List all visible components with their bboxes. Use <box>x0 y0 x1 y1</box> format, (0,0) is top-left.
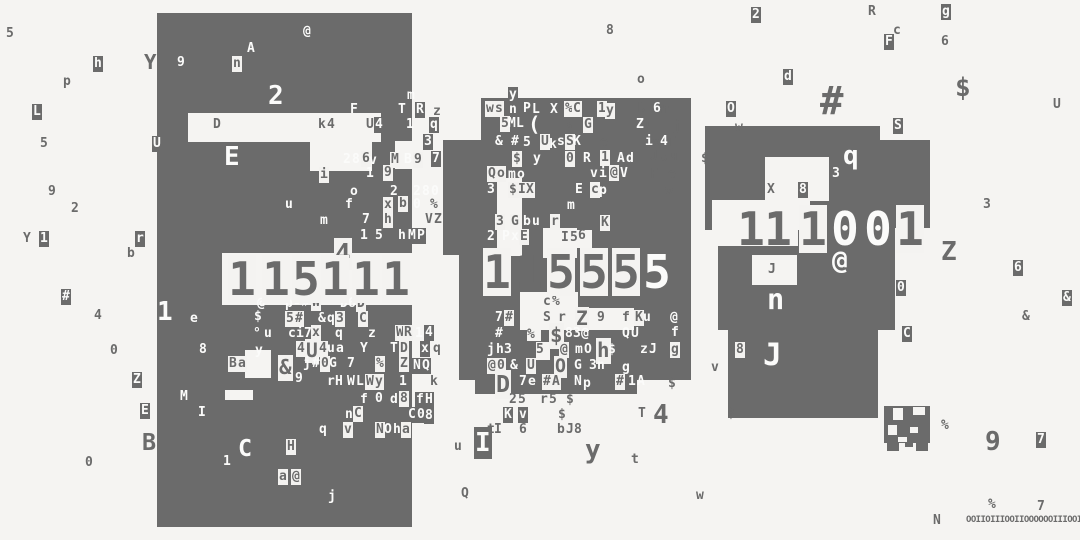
big-digit: 5 <box>643 248 671 296</box>
glyph: a <box>237 356 247 372</box>
glyph: u <box>285 197 293 213</box>
block-rect <box>887 443 899 451</box>
glyph: u <box>532 214 540 230</box>
glyph: L <box>516 116 524 132</box>
glyph: 1 <box>406 117 414 133</box>
big-digit: 1 <box>321 255 349 303</box>
glyph: $ <box>254 309 262 325</box>
glyph: j <box>303 356 311 372</box>
glyph: 3 <box>573 326 581 342</box>
glyph: h <box>496 342 504 358</box>
glyph: 3 <box>487 182 495 198</box>
glyph: b <box>557 422 565 438</box>
glyph: w <box>735 120 743 136</box>
glyph: K <box>503 407 513 423</box>
glyph: Y <box>360 341 368 357</box>
glyph: % <box>941 418 949 434</box>
glyph: F <box>884 34 894 50</box>
glyph: C <box>353 406 363 422</box>
glyph: 2 <box>268 80 284 112</box>
glyph: R <box>403 325 413 341</box>
glyph: 3 <box>495 214 505 230</box>
cutout-rect <box>910 427 918 433</box>
glyph: Z <box>941 236 957 268</box>
glyph: 9 <box>177 55 185 71</box>
glyph: Z <box>434 212 442 228</box>
glyph: E <box>224 141 240 173</box>
glyph: T <box>398 102 406 118</box>
glyph: # <box>615 374 625 390</box>
glyph: w <box>696 488 704 504</box>
glyph: # <box>495 326 503 342</box>
glyph: j <box>673 119 681 135</box>
big-digit: 5 <box>547 248 575 296</box>
glyph: # <box>511 134 519 150</box>
glyph: 6 <box>578 228 586 244</box>
glyph: U <box>366 117 374 133</box>
glyph: 0 <box>896 280 906 296</box>
glyph: 9 <box>597 310 605 326</box>
glyph: U <box>152 136 162 152</box>
glyph: 6 <box>519 422 527 438</box>
glyph: @ <box>609 165 619 181</box>
glyph: # <box>294 311 304 327</box>
glyph: k <box>430 374 438 390</box>
glyph: z <box>640 342 648 358</box>
big-digit: 1 <box>262 255 290 303</box>
glyph: N <box>574 374 582 390</box>
glyph: q <box>335 326 343 342</box>
glyph: o <box>637 72 645 88</box>
glyph: % <box>527 327 535 343</box>
glyph: 1 <box>360 228 368 244</box>
big-digit: 1 <box>483 248 511 296</box>
glyph: G <box>583 117 593 133</box>
glyph: T <box>390 341 398 357</box>
glyph: W <box>347 374 355 390</box>
glyph: e <box>668 167 676 183</box>
glyph: # <box>61 289 71 305</box>
glyph: f <box>670 325 680 341</box>
glyph: b <box>523 214 531 230</box>
glyph: 1 <box>39 231 49 247</box>
glyph: 9 <box>48 184 56 200</box>
glyph: e <box>528 374 536 390</box>
glyph: 4 <box>653 399 669 431</box>
glyph: 1 <box>415 326 423 342</box>
glyph: Z <box>132 372 142 388</box>
glyph: u <box>327 341 335 357</box>
glyph: q <box>433 341 441 357</box>
glyph: q <box>429 117 439 133</box>
glyph: x <box>420 341 430 357</box>
glyph: v <box>590 166 598 182</box>
glyph: O <box>726 101 736 117</box>
glyph: p <box>599 183 607 199</box>
glyph: O <box>584 342 592 358</box>
glyph: # <box>504 310 514 326</box>
glyph: o <box>496 166 506 182</box>
glyph: 8 <box>565 326 573 342</box>
glyph: 5 <box>549 392 557 408</box>
glyph: @ <box>581 326 589 342</box>
glyph: s <box>557 134 565 150</box>
glyph: h <box>383 212 393 228</box>
glyph: 7 <box>431 151 441 167</box>
glyph: J <box>763 336 782 374</box>
glyph: 5 <box>40 136 48 152</box>
glyph: 6 <box>1013 260 1023 276</box>
glyph: 3 <box>504 342 512 358</box>
cutout-rect <box>898 437 907 442</box>
glyph: s <box>565 118 573 134</box>
glyph: 8 <box>606 23 614 39</box>
glyph: 8 <box>735 342 745 358</box>
glyph: u <box>643 310 651 326</box>
glyph: c <box>288 326 296 342</box>
glyph: F <box>650 167 658 183</box>
glyph: Z <box>399 356 409 372</box>
glyph: % <box>375 356 385 372</box>
glyph: o <box>517 167 525 183</box>
glyph: $ <box>512 151 522 167</box>
glyph: 2 <box>343 152 351 168</box>
glyph: 1 <box>223 454 231 470</box>
glyph: P <box>416 228 426 244</box>
big-digit: 1 <box>382 255 410 303</box>
glyph: 8 <box>399 391 409 407</box>
glyph: O <box>384 422 392 438</box>
glyph: E <box>140 403 150 419</box>
glyph: w <box>665 183 673 199</box>
glyph: J <box>649 342 657 358</box>
glyph: 7 <box>519 374 527 390</box>
block-rect <box>728 330 878 418</box>
glyph: y <box>605 103 615 119</box>
glyph: 5 <box>375 228 383 244</box>
glyph: 7 <box>362 212 370 228</box>
glyph: h <box>93 56 103 72</box>
glyph: @ <box>291 469 301 485</box>
glyph: y <box>533 151 541 167</box>
glyph: D <box>213 117 221 133</box>
glyph: 4 <box>424 325 434 341</box>
glyph: m <box>661 102 669 118</box>
glyph: p <box>63 74 71 90</box>
glyph: y <box>585 434 601 466</box>
glyph: 2 <box>509 392 517 408</box>
glyph: $ <box>566 392 574 408</box>
glyph: 1 <box>628 374 636 390</box>
glyph: ( <box>528 112 541 138</box>
glyph: H <box>424 392 434 408</box>
glyph: h <box>393 422 401 438</box>
glyph: V <box>425 212 433 228</box>
glyph: q <box>319 422 327 438</box>
glyph: 0 <box>85 455 93 471</box>
glyph: R <box>583 151 591 167</box>
glyph: @ <box>670 310 678 326</box>
glyph: S <box>893 118 903 134</box>
glyph: & <box>278 355 293 381</box>
cutout-rect <box>913 407 925 415</box>
glyph: N <box>933 513 941 529</box>
glyph: 3 <box>831 166 841 182</box>
glyph: @ <box>303 24 311 40</box>
glyph: A <box>247 41 255 57</box>
glyph: a <box>336 341 344 357</box>
glyph: o <box>659 151 667 167</box>
glyph: 3 <box>589 358 597 374</box>
glyph: 1 <box>600 150 610 166</box>
glyph: E <box>575 182 583 198</box>
glyph: v <box>711 360 719 376</box>
glyph: M <box>508 116 516 132</box>
glyph: 8 <box>352 152 360 168</box>
glyph: h <box>398 228 406 244</box>
glyph: n <box>767 282 784 317</box>
big-digit: 1 <box>896 205 924 253</box>
glyph: f <box>345 197 353 213</box>
glyph: A <box>637 374 645 390</box>
glyph: r <box>135 231 145 247</box>
glyph: m <box>407 88 415 104</box>
glyph: 1 <box>399 374 407 390</box>
glyph: $ <box>668 376 676 392</box>
glyph: 2 <box>751 7 761 23</box>
glyph: I <box>494 422 502 438</box>
glyph: R <box>415 102 425 118</box>
glyph: K <box>600 215 610 231</box>
glyph: 0 <box>375 391 383 407</box>
glyph: g <box>941 4 951 20</box>
glyph: G <box>574 358 582 374</box>
glyph: 5 <box>536 342 544 358</box>
glyph: x <box>383 197 393 213</box>
glyph: $ <box>608 342 616 358</box>
glyph: q <box>843 140 859 172</box>
glyph: u <box>454 439 462 455</box>
glyph: Q <box>461 486 469 502</box>
glyph: J <box>768 262 776 278</box>
glyph: m <box>575 342 583 358</box>
glyph: y <box>508 87 518 103</box>
glyph: & <box>1022 309 1030 325</box>
glyph: $ <box>558 407 566 423</box>
glyph: k <box>318 117 326 133</box>
glyph: 5 <box>570 230 578 246</box>
big-digit: 5 <box>612 248 640 296</box>
cutout-rect <box>888 425 897 435</box>
glyph: J <box>566 422 574 438</box>
big-digit: 1 <box>515 248 543 296</box>
glyph: L <box>32 104 42 120</box>
glyph: s <box>494 101 504 117</box>
glyph: 2 <box>487 229 495 245</box>
big-digit: 1 <box>737 205 765 253</box>
glyph: $ <box>701 151 709 167</box>
glyph: D <box>638 101 646 117</box>
glyph: i <box>599 166 607 182</box>
glyph: D <box>399 341 409 357</box>
glyph: 2 <box>71 201 79 217</box>
glyph: e <box>190 311 198 327</box>
glyph: v <box>343 422 353 438</box>
glyph: H <box>335 374 343 390</box>
glyph: n <box>597 358 605 374</box>
glyph: 1 <box>366 166 374 182</box>
big-digit: 1 <box>352 255 380 303</box>
glyph: B <box>404 152 412 168</box>
glyph: K <box>573 134 581 150</box>
glyph: T <box>638 406 646 422</box>
glyph: m <box>567 198 575 214</box>
glyph: j <box>487 342 495 358</box>
big-digit: 0 <box>864 205 892 253</box>
glyph: & <box>1062 290 1072 306</box>
glyph: 9 <box>985 426 1001 458</box>
glyph: b <box>127 246 135 262</box>
glyph: C <box>238 434 252 463</box>
glyph: u <box>670 149 678 165</box>
glyph: L <box>356 374 364 390</box>
glyph: r <box>550 214 560 230</box>
glyph: 6 <box>941 34 949 50</box>
glyph: G <box>329 356 337 372</box>
glyph: 0 <box>413 197 421 213</box>
glyph: d <box>783 69 793 85</box>
glyph: j <box>328 489 336 505</box>
glyph: U <box>526 358 536 374</box>
glyph: 5 <box>523 135 531 151</box>
glyph: C <box>358 311 368 327</box>
glyph: 4 <box>94 308 102 324</box>
glyph: C <box>902 326 912 342</box>
glyph: % <box>430 197 438 213</box>
glyph: 7 <box>1036 432 1046 448</box>
glyph: k <box>549 137 557 153</box>
big-digit: 1 <box>764 205 792 253</box>
glyph: y <box>255 343 263 359</box>
glyph: z <box>368 326 376 342</box>
glyph: a <box>278 469 288 485</box>
glyph: 4 <box>374 117 384 133</box>
glyph: q <box>327 311 335 327</box>
glyph: R <box>868 4 876 20</box>
glyph: 5 <box>6 26 14 42</box>
glyph: H <box>286 439 296 455</box>
big-digit: 1 <box>228 255 256 303</box>
glyph: n <box>232 56 242 72</box>
glyph: ° <box>253 326 261 342</box>
glyph: I <box>561 230 569 246</box>
glyph: e <box>600 135 608 151</box>
glyph: 0 <box>565 151 575 167</box>
glyph: $ <box>727 406 735 422</box>
glyph: & <box>510 358 518 374</box>
glyph: v <box>518 407 528 423</box>
glyph: V <box>620 166 628 182</box>
glyph: t <box>644 117 652 133</box>
glyph: 3 <box>423 134 433 150</box>
glyph: M <box>180 389 188 405</box>
glyph: c <box>893 23 901 39</box>
glyph: a <box>401 422 411 438</box>
big-digit: 1 <box>799 205 827 253</box>
glyph: C <box>572 101 582 117</box>
block-rect <box>916 443 928 451</box>
glyph: r <box>540 392 548 408</box>
glyph: y <box>374 374 384 390</box>
glyph: X <box>525 182 535 198</box>
glyph: m <box>508 167 516 183</box>
glyph: E <box>519 229 529 245</box>
glyph: $ <box>955 72 971 104</box>
glyph: Q <box>622 326 630 342</box>
glyph: n <box>345 407 353 423</box>
glyph: # <box>820 78 843 126</box>
glyph: % <box>988 497 996 513</box>
glyph: 9 <box>413 152 423 168</box>
glyph: g <box>670 342 680 358</box>
glyph: 3 <box>983 197 991 213</box>
glyph: 8 <box>424 408 434 424</box>
glyph: d <box>626 151 634 167</box>
glyph: X <box>767 182 775 198</box>
glyph: p <box>583 376 591 392</box>
glyph: I <box>198 405 206 421</box>
big-digit: 0 <box>831 205 859 253</box>
barcode-string: OOIIOIIIOOIIOOOOOOIIIOOI <box>966 515 1080 525</box>
big-digit: 5 <box>292 255 320 303</box>
glyph: J <box>650 149 658 165</box>
glyph: r <box>327 374 335 390</box>
glyph: 4 <box>327 117 335 133</box>
glyph: Q <box>421 358 431 374</box>
glyph: x <box>511 229 519 245</box>
glyph: f <box>622 310 630 326</box>
glyph: & <box>495 134 503 150</box>
glyph: F <box>350 102 358 118</box>
glyph: 3 <box>335 311 345 327</box>
cutout-rect <box>893 408 903 420</box>
glyph: b <box>398 196 408 212</box>
glyph: 1 <box>157 296 173 328</box>
glyph: Y <box>23 231 31 247</box>
ascii-art-canvas: 5hYpL5U92Y1rb#40ZEB0@A9n2mFTRzDk4U41qE3i… <box>0 0 1080 540</box>
glyph: d <box>390 392 398 408</box>
glyph: U <box>631 326 639 342</box>
glyph: U <box>1053 97 1061 113</box>
glyph: m <box>320 213 328 229</box>
glyph: 0 <box>110 343 118 359</box>
glyph: 7 <box>1037 499 1045 515</box>
glyph: Y <box>144 50 157 76</box>
big-digit: 5 <box>580 248 608 296</box>
glyph: 5 <box>518 392 526 408</box>
glyph: G <box>510 214 520 230</box>
glyph: t <box>631 452 639 468</box>
glyph: B <box>142 428 156 457</box>
glyph: 9 <box>295 371 303 387</box>
glyph: # <box>312 356 320 372</box>
glyph: 7 <box>495 310 503 326</box>
glyph: P <box>502 229 510 245</box>
glyph: i <box>296 326 304 342</box>
glyph: 7 <box>347 356 355 372</box>
cutout-rect <box>225 390 253 400</box>
glyph: 8 <box>422 184 430 200</box>
